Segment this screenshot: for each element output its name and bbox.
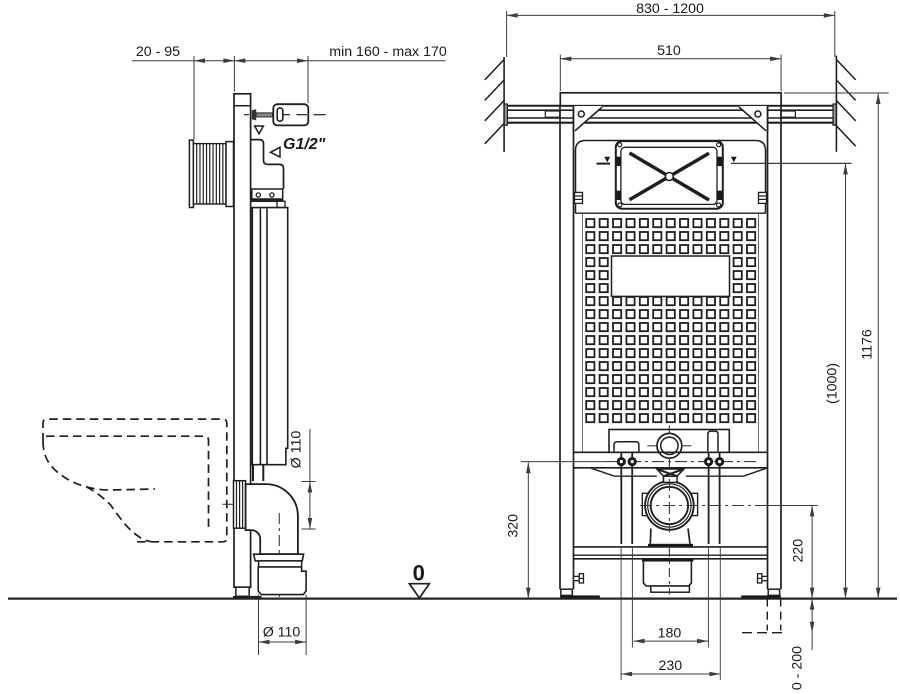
svg-text:0 - 200: 0 - 200 (790, 646, 806, 690)
svg-text:320: 320 (506, 514, 522, 538)
svg-text:510: 510 (657, 43, 681, 59)
svg-text:G1/2": G1/2" (283, 136, 326, 153)
svg-text:230: 230 (658, 658, 682, 674)
svg-text:180: 180 (658, 626, 682, 642)
svg-text:220: 220 (791, 539, 807, 563)
svg-text:Ø 110: Ø 110 (263, 625, 301, 641)
svg-text:(1000): (1000) (825, 363, 841, 404)
svg-text:Ø 110: Ø 110 (289, 431, 305, 469)
svg-text:830 - 1200: 830 - 1200 (636, 1, 704, 17)
svg-text:min 160 - max 170: min 160 - max 170 (329, 44, 447, 60)
svg-text:20 - 95: 20 - 95 (136, 44, 180, 60)
svg-text:0: 0 (413, 561, 425, 586)
svg-text:1176: 1176 (860, 329, 876, 360)
